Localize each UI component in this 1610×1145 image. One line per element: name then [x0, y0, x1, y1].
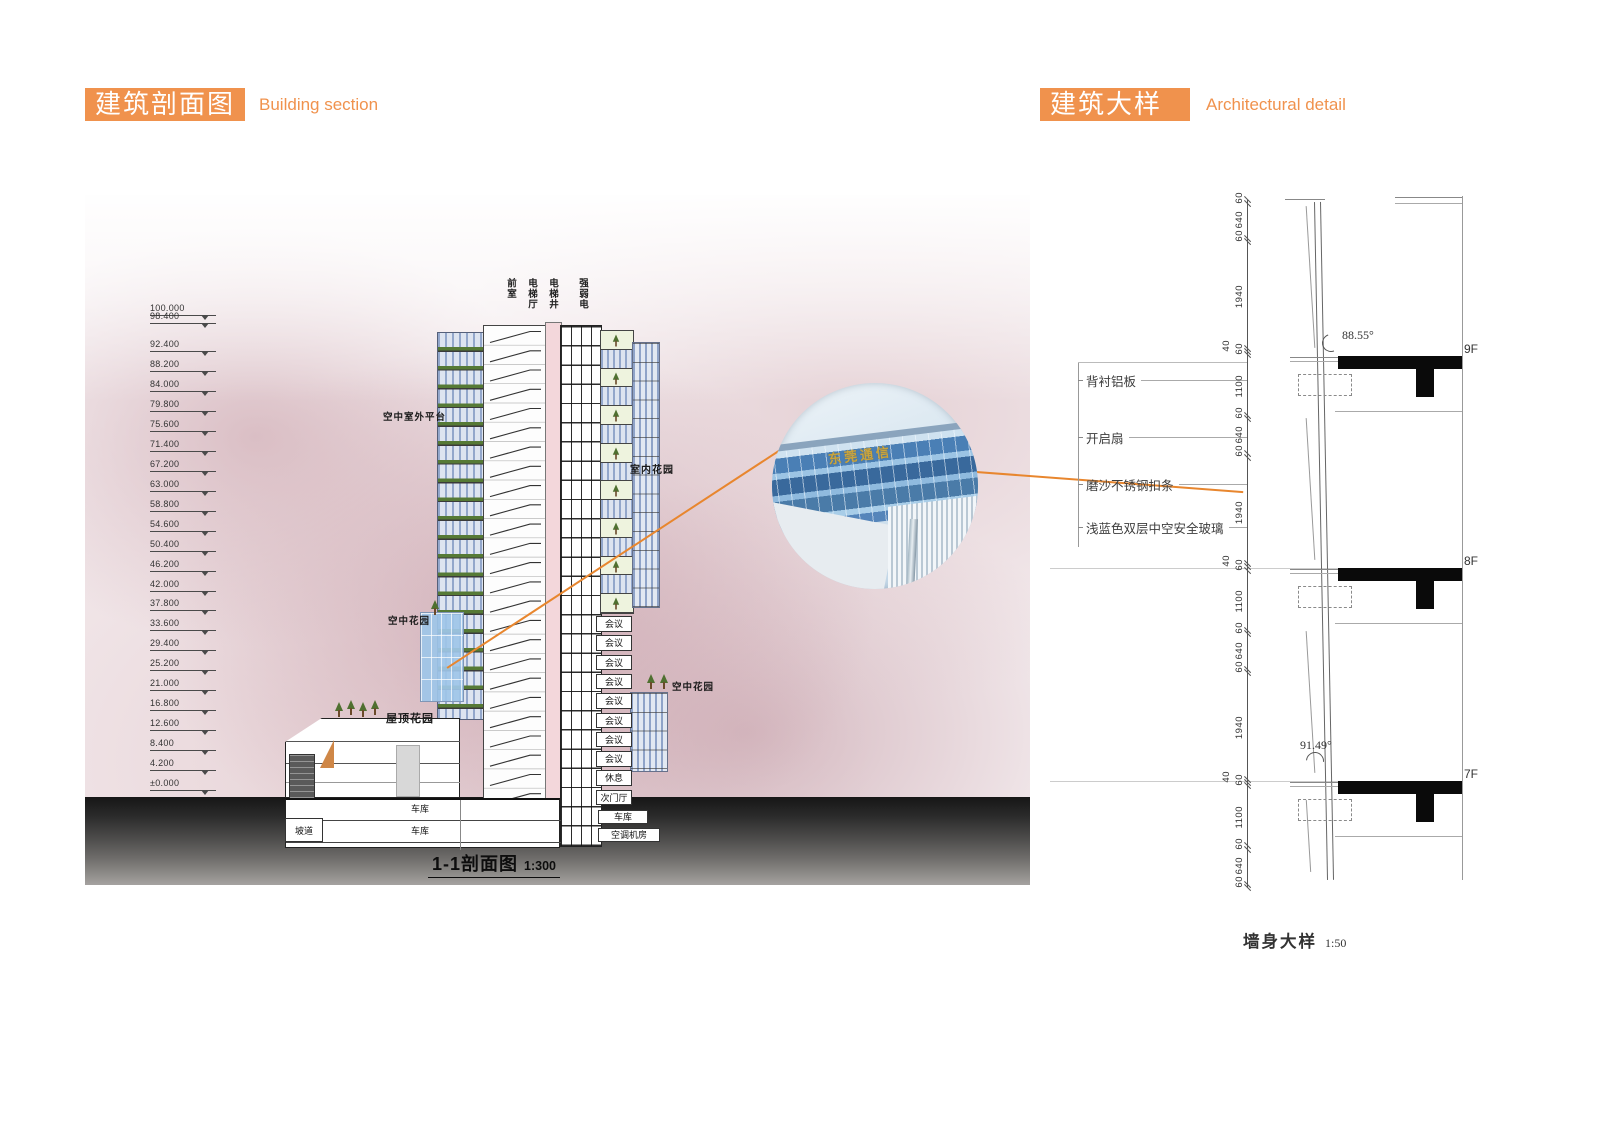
- elevation-flag-icon: [201, 411, 209, 416]
- elevation-marker: 37.800: [150, 598, 216, 611]
- slab-stub-line: [1290, 569, 1338, 570]
- slab-stub-line: [1290, 573, 1338, 574]
- dimension-value: 60: [1234, 661, 1245, 673]
- slab-stub-line: [1290, 361, 1338, 362]
- detail-right-edge-line: [1462, 196, 1463, 880]
- slab-stub-line: [1290, 357, 1338, 358]
- garden-cell: [601, 406, 633, 425]
- garden-cell: [601, 557, 633, 576]
- elevation-value: 25.200: [150, 658, 179, 668]
- elevation-flag-icon: [201, 323, 209, 328]
- header-left: 建筑剖面图 Building section: [85, 88, 378, 121]
- elevation-value: 98.400: [150, 311, 179, 321]
- stair-flights: [484, 326, 546, 846]
- elevation-marker: 75.600: [150, 419, 216, 432]
- detail-caption-scale: 1:50: [1325, 936, 1346, 951]
- detail-top-line: [1395, 197, 1462, 198]
- facade-photo-circle: 东莞通信: [772, 383, 978, 589]
- elevation-value: 79.800: [150, 399, 179, 409]
- elevation-value: 71.400: [150, 439, 179, 449]
- ramp-label: 坡道: [295, 826, 313, 836]
- elevation-marker: 84.000: [150, 379, 216, 392]
- elevation-marker: 16.800: [150, 698, 216, 711]
- dimension-value: 60: [1234, 774, 1245, 786]
- dimension-value: 40: [1221, 771, 1232, 783]
- detail-top-line: [1395, 203, 1462, 204]
- elevation-value: 8.400: [150, 738, 174, 748]
- dimension-value: 60: [1234, 192, 1245, 204]
- tree-icon: [659, 674, 669, 689]
- callout-text: 浅蓝色双层中空安全玻璃: [1086, 518, 1224, 537]
- callout-safety-glass: 浅蓝色双层中空安全玻璃: [1078, 518, 1248, 537]
- dimension-value: 60: [1234, 230, 1245, 242]
- hvac-room-label: 空调机房: [611, 830, 647, 840]
- elevation-flag-icon: [201, 750, 209, 755]
- sky-garden-right-label: 空中花园: [672, 679, 714, 693]
- dimension-value: 60: [1234, 838, 1245, 850]
- dimension-value: 640: [1234, 642, 1245, 659]
- floor-beam: [1416, 581, 1434, 609]
- tree-icon: [612, 447, 620, 459]
- garage-label-left-1: 车库: [400, 802, 440, 815]
- ramp-label-box: 坡道: [285, 818, 323, 842]
- elevation-value: 21.000: [150, 678, 179, 688]
- elevation-marker: 71.400: [150, 439, 216, 452]
- elevation-flag-icon: [201, 491, 209, 496]
- elevation-flag-icon: [201, 730, 209, 735]
- tree-icon: [612, 598, 620, 610]
- dimension-value: 640: [1234, 211, 1245, 228]
- room-label-box: 次门厅: [596, 790, 632, 806]
- garden-cell: [601, 594, 633, 613]
- elevation-flag-icon: [201, 431, 209, 436]
- room-label-box: 会议: [596, 693, 632, 709]
- elevation-marker: 92.400: [150, 339, 216, 352]
- section-caption-scale: 1:300: [524, 859, 556, 873]
- hvac-room-box: 空调机房: [598, 828, 660, 842]
- shaft-label-electrical: 强弱电: [575, 278, 589, 324]
- elevation-flag-icon: [201, 511, 209, 516]
- podium-stair-block: [289, 754, 315, 800]
- detail-caption: 墙身大样 1:50: [1243, 928, 1346, 952]
- elevation-marker: 12.600: [150, 718, 216, 731]
- ceiling-line: [1335, 623, 1462, 624]
- glazing-cell: [601, 350, 633, 369]
- room-label-box: 会议: [596, 635, 632, 651]
- tree-icon: [612, 485, 620, 497]
- shaft-label-elevator-shaft: 电梯井: [545, 278, 559, 324]
- callout-text: 背衬铝板: [1086, 371, 1136, 390]
- garage-label-left-2: 车库: [400, 824, 440, 837]
- elevation-flag-icon: [201, 690, 209, 695]
- section-caption: 1-1剖面图 1:300: [428, 850, 560, 878]
- garage-label-right: 车库: [614, 812, 632, 822]
- dimension-value: 1940: [1234, 285, 1245, 308]
- sky-outdoor-platform-label: 空中室外平台: [383, 409, 446, 423]
- dimension-value: 1940: [1234, 716, 1245, 739]
- roof-garden-label: 屋顶花园: [386, 710, 434, 726]
- podium-floor-line: [286, 741, 461, 742]
- floor-label: 7F: [1464, 767, 1478, 781]
- floor-label: 8F: [1464, 554, 1478, 568]
- tick-icon: [1078, 484, 1083, 485]
- elevation-marker: 67.200: [150, 459, 216, 472]
- elevation-value: 42.000: [150, 579, 179, 589]
- dimension-value: 1100: [1234, 806, 1245, 828]
- elevation-value: 12.600: [150, 718, 179, 728]
- ceiling-line: [1335, 836, 1462, 837]
- elevation-flag-icon: [201, 371, 209, 376]
- elevation-marker: 33.600: [150, 618, 216, 631]
- callout-steel-strip: 磨沙不锈钢扣条: [1078, 475, 1248, 494]
- glazing-cell: [601, 500, 633, 519]
- elevation-marker: 63.000: [150, 479, 216, 492]
- elevation-marker: 54.600: [150, 519, 216, 532]
- dimension-value: 1100: [1234, 590, 1245, 612]
- tree-icon: [612, 523, 620, 535]
- elevation-marker: 21.000: [150, 678, 216, 691]
- tree-icon: [646, 674, 656, 689]
- garden-cell: [601, 481, 633, 500]
- detail-title-en: Architectural detail: [1206, 95, 1346, 115]
- elevation-marker: 8.400: [150, 738, 216, 751]
- basement-floor-line: [286, 842, 561, 843]
- leader-line: [1141, 380, 1248, 381]
- elevation-value: 37.800: [150, 598, 179, 608]
- slab-stub-line: [1290, 782, 1338, 783]
- elevation-value: 54.600: [150, 519, 179, 529]
- detail-title-zh: 建筑大样: [1040, 88, 1190, 121]
- floor-beam: [1416, 369, 1434, 397]
- glazing-cell: [601, 387, 633, 406]
- room-label-box: 会议: [596, 732, 632, 748]
- dimension-value: 640: [1234, 857, 1245, 874]
- dimension-value: 60: [1234, 559, 1245, 571]
- tick-icon: [1078, 527, 1083, 528]
- tree-icon: [346, 700, 356, 715]
- elevation-flag-icon: [201, 670, 209, 675]
- sash-line: [1306, 418, 1316, 560]
- elevation-marker: 50.400: [150, 539, 216, 552]
- tower-right-garden-cells: [600, 330, 634, 614]
- dashed-detail-box: [1298, 374, 1352, 396]
- elevation-value: 16.800: [150, 698, 179, 708]
- dimension-value: 1940: [1234, 501, 1245, 524]
- tree-icon: [370, 700, 380, 715]
- sky-garden-right-facade: [630, 692, 668, 772]
- dimension-value: 40: [1221, 340, 1232, 352]
- elevation-flag-icon: [201, 551, 209, 556]
- photo-louver-facade: [888, 495, 978, 589]
- garden-cell: [601, 519, 633, 538]
- room-stack: 会议会议会议会议会议会议会议会议休息次门厅: [596, 616, 632, 811]
- floor-slab: [1338, 568, 1462, 581]
- dimension-value: 640: [1234, 426, 1245, 443]
- tree-icon: [334, 702, 344, 717]
- dashed-detail-box: [1298, 586, 1352, 608]
- shaft-label-front-room: 前室: [503, 278, 517, 324]
- slab-stub-line: [1290, 786, 1338, 787]
- elevation-markers: 100.00098.40092.40088.20084.00079.80075.…: [150, 0, 216, 1145]
- callout-opening-sash: 开启扇: [1078, 428, 1248, 447]
- floor-label: 9F: [1464, 342, 1478, 356]
- elevation-value: 88.200: [150, 359, 179, 369]
- elevation-value: 75.600: [150, 419, 179, 429]
- tower-stair-core: [483, 325, 547, 847]
- elevation-value: 58.800: [150, 499, 179, 509]
- tree-icon: [612, 335, 620, 347]
- elevation-flag-icon: [201, 710, 209, 715]
- elevation-value: 29.400: [150, 638, 179, 648]
- tree-icon: [358, 702, 368, 717]
- elevation-flag-icon: [201, 471, 209, 476]
- glazing-cell: [601, 463, 633, 482]
- elevation-marker: 42.000: [150, 579, 216, 592]
- elevation-value: 63.000: [150, 479, 179, 489]
- basement-divider: [460, 800, 461, 850]
- dimension-value: 40: [1221, 555, 1232, 567]
- elevation-value: 50.400: [150, 539, 179, 549]
- room-label-box: 会议: [596, 674, 632, 690]
- dimension-value: 60: [1234, 622, 1245, 634]
- elevation-flag-icon: [201, 790, 209, 795]
- elevation-flag-icon: [201, 610, 209, 615]
- garden-cell: [601, 331, 633, 350]
- glazing-cell: [601, 425, 633, 444]
- leader-line: [1129, 437, 1248, 438]
- tree-icon: [430, 600, 440, 615]
- room-label-box: 休息: [596, 770, 632, 786]
- callout-top-line: [1078, 362, 1247, 363]
- section-title-en: Building section: [259, 95, 378, 115]
- tree-icon: [612, 372, 620, 384]
- indoor-garden-label: 室内花园: [630, 461, 674, 476]
- sky-garden-left-label: 空中花园: [388, 613, 430, 627]
- detail-top-line: [1285, 199, 1325, 200]
- elevation-marker: 46.200: [150, 559, 216, 572]
- dimension-value: 60: [1234, 876, 1245, 888]
- room-label-box: 会议: [596, 713, 632, 729]
- elevation-value: 92.400: [150, 339, 179, 349]
- elevation-marker: 25.200: [150, 658, 216, 671]
- elevation-marker: ±0.000: [150, 778, 216, 791]
- dimension-value: 1100: [1234, 375, 1245, 397]
- tree-icon: [612, 410, 620, 422]
- elevation-flag-icon: [201, 650, 209, 655]
- elevation-marker: 29.400: [150, 638, 216, 651]
- floor-beam: [1416, 794, 1434, 822]
- elevation-marker: 98.400: [150, 311, 216, 324]
- dimension-value: 60: [1234, 343, 1245, 355]
- angle-label-top: 88.55°: [1342, 328, 1374, 343]
- callout-text: 磨沙不锈钢扣条: [1086, 475, 1174, 494]
- room-label-box: 会议: [596, 616, 632, 632]
- room-label-box: 会议: [596, 655, 632, 671]
- tree-icon: [612, 560, 620, 572]
- section-caption-title: 1-1剖面图: [432, 850, 518, 876]
- leader-line: [1229, 527, 1248, 528]
- leader-line: [1179, 484, 1248, 485]
- elevation-value: 4.200: [150, 758, 174, 768]
- garage-box-right: 车库: [598, 810, 648, 824]
- elevation-value: ±0.000: [150, 778, 179, 788]
- elevation-flag-icon: [201, 630, 209, 635]
- callout-aluminum-panel: 背衬铝板: [1078, 371, 1248, 390]
- elevation-flag-icon: [201, 591, 209, 596]
- floor-slab: [1338, 356, 1462, 369]
- elevation-value: 33.600: [150, 618, 179, 628]
- floor-slab: [1338, 781, 1462, 794]
- elevation-value: 84.000: [150, 379, 179, 389]
- shaft-labels: 前室 电梯厅 电梯井 强弱电: [503, 278, 589, 324]
- dimension-value: 60: [1234, 407, 1245, 419]
- ceiling-line: [1335, 411, 1462, 412]
- elevation-marker: 58.800: [150, 499, 216, 512]
- podium-equipment: [396, 745, 420, 797]
- elevation-flag-icon: [201, 351, 209, 356]
- elevation-flag-icon: [201, 770, 209, 775]
- garden-cell: [601, 369, 633, 388]
- curtainwall-mullion: [1314, 202, 1334, 880]
- elevation-flag-icon: [201, 391, 209, 396]
- detail-caption-title: 墙身大样: [1243, 928, 1317, 952]
- glazing-cell: [601, 575, 633, 594]
- garden-cell: [601, 444, 633, 463]
- shaft-label-elevator-hall: 电梯厅: [524, 278, 538, 324]
- elevation-marker: 4.200: [150, 758, 216, 771]
- callout-text: 开启扇: [1086, 428, 1124, 447]
- elevation-flag-icon: [201, 531, 209, 536]
- elevation-value: 67.200: [150, 459, 179, 469]
- basement-floor-line: [286, 820, 561, 821]
- tick-icon: [1078, 380, 1083, 381]
- room-label-box: 会议: [596, 751, 632, 767]
- elevation-value: 46.200: [150, 559, 179, 569]
- elevation-flag-icon: [201, 571, 209, 576]
- header-right: 建筑大样 Architectural detail: [1040, 88, 1346, 121]
- elevation-flag-icon: [201, 451, 209, 456]
- elevation-marker: 88.200: [150, 359, 216, 372]
- elevation-marker: 79.800: [150, 399, 216, 412]
- tick-icon: [1078, 437, 1083, 438]
